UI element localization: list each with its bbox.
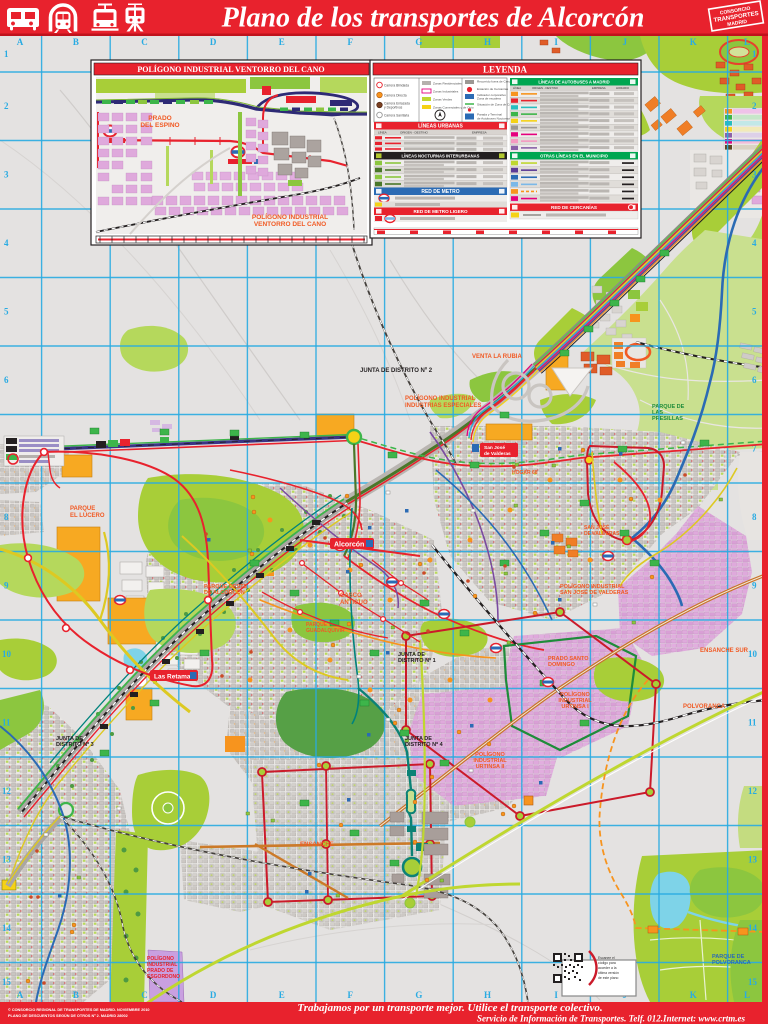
svg-text:ORIGEN - DESTINO: ORIGEN - DESTINO [400, 131, 429, 135]
svg-text:LÍNEAS URBANAS: LÍNEAS URBANAS [418, 122, 463, 130]
svg-text:San José: San José [484, 445, 505, 451]
svg-text:HOGAR 68: HOGAR 68 [512, 470, 538, 476]
svg-text:SAN JOSÉ DE VALDERAS: SAN JOSÉ DE VALDERAS [560, 588, 629, 596]
svg-text:8: 8 [4, 512, 9, 522]
svg-text:L: L [744, 990, 750, 1000]
svg-text:DE VALDERAS: DE VALDERAS [584, 531, 620, 537]
svg-text:LÍNEAS NOCTURNAS INTERURBANAS: LÍNEAS NOCTURNAS INTERURBANAS [402, 154, 480, 159]
svg-text:LEYENDA: LEYENDA [483, 65, 528, 75]
svg-text:6: 6 [752, 375, 757, 385]
svg-text:13: 13 [2, 855, 12, 865]
svg-text:15: 15 [748, 977, 758, 987]
svg-text:© CONSORCIO REGIONAL DE TRANSP: © CONSORCIO REGIONAL DE TRANSPORTES DE M… [8, 1008, 150, 1012]
svg-text:F: F [348, 990, 354, 1000]
svg-text:de este plano: de este plano [598, 976, 618, 980]
svg-text:3: 3 [4, 170, 9, 180]
svg-text:PARQUE: PARQUE [70, 506, 95, 512]
svg-text:Escanee el: Escanee el [598, 956, 615, 960]
svg-text:EMPRESA: EMPRESA [472, 131, 487, 135]
svg-text:10: 10 [2, 649, 12, 659]
svg-text:12: 12 [2, 786, 12, 796]
svg-text:Zonas Residenciales: Zonas Residenciales [433, 82, 462, 86]
svg-text:LÍNEAS DE AUTOBUSES A MADRID: LÍNEAS DE AUTOBUSES A MADRID [538, 80, 609, 85]
svg-text:C: C [141, 37, 148, 47]
svg-text:Carrera Directa: Carrera Directa [384, 94, 407, 98]
svg-text:JUNTA DE DISTRITO Nº 2: JUNTA DE DISTRITO Nº 2 [360, 368, 433, 374]
svg-text:de Autobuses Nocturnos: de Autobuses Nocturnos [477, 117, 511, 121]
svg-text:Plano de los transportes de Al: Plano de los transportes de Alcorcón [221, 3, 645, 34]
svg-text:POLVORANCA: POLVORANCA [712, 960, 751, 966]
svg-text:ENSANCHE SUR: ENSANCHE SUR [700, 648, 749, 654]
svg-text:código para: código para [598, 961, 616, 965]
svg-text:RED DE METRO: RED DE METRO [421, 189, 459, 195]
svg-text:B: B [73, 990, 79, 1000]
svg-text:4: 4 [4, 238, 9, 248]
svg-text:Las Retamas: Las Retamas [154, 674, 194, 681]
svg-text:I: I [554, 37, 558, 47]
svg-text:PRESILLAS: PRESILLAS [652, 416, 683, 422]
svg-text:5: 5 [752, 307, 757, 317]
svg-text:D: D [210, 990, 217, 1000]
svg-text:Zona de escalera: Zona de escalera [477, 97, 501, 101]
svg-text:y Deportivos: y Deportivos [384, 106, 403, 110]
svg-text:DISTRITO Nº 4: DISTRITO Nº 4 [405, 742, 444, 748]
svg-text:12: 12 [748, 786, 758, 796]
svg-text:2: 2 [752, 101, 757, 111]
svg-text:EMPRESA: EMPRESA [592, 86, 606, 90]
svg-text:5: 5 [4, 307, 9, 317]
svg-text:G: G [415, 990, 422, 1000]
svg-text:ESGORDONO: ESGORDONO [147, 974, 180, 980]
svg-text:C: C [141, 990, 148, 1000]
svg-text:Carrera Sanitaria: Carrera Sanitaria [384, 114, 409, 118]
svg-text:Servicio de Información de Tra: Servicio de Información de Transportes. … [477, 1014, 745, 1024]
svg-text:DEL ESPINO: DEL ESPINO [140, 122, 179, 129]
svg-text:Zonas Industriales: Zonas Industriales [433, 90, 459, 94]
svg-text:11: 11 [748, 718, 757, 728]
svg-text:9: 9 [4, 581, 9, 591]
svg-text:K: K [690, 37, 697, 47]
svg-text:URTINSA II: URTINSA II [476, 764, 505, 770]
svg-text:B: B [73, 37, 79, 47]
svg-text:LÍNEA: LÍNEA [378, 131, 387, 135]
svg-text:ENSANCHE: ENSANCHE [300, 842, 334, 848]
svg-text:GUADALQUIVIR: GUADALQUIVIR [306, 628, 345, 634]
svg-text:Estación de Cercanías: Estación de Cercanías [477, 87, 509, 91]
svg-text:acceder a la: acceder a la [598, 966, 617, 970]
svg-text:POLÍGONO INDUSTRIAL: POLÍGONO INDUSTRIAL [405, 394, 476, 402]
svg-text:4: 4 [752, 238, 757, 248]
svg-text:PRADO: PRADO [148, 115, 171, 122]
svg-text:Zonas Comerciales y de Ocio: Zonas Comerciales y de Ocio [433, 106, 474, 110]
svg-text:RED DE METRO LIGERO: RED DE METRO LIGERO [413, 209, 468, 214]
svg-text:CASCO: CASCO [340, 593, 362, 599]
svg-text:ORIGEN - DESTINO: ORIGEN - DESTINO [532, 86, 559, 90]
svg-text:última versión: última versión [598, 971, 619, 975]
svg-text:INDUSTRIAS ESPECIALES: INDUSTRIAS ESPECIALES [405, 403, 481, 409]
svg-text:L: L [744, 37, 750, 47]
svg-text:13: 13 [748, 855, 758, 865]
svg-text:D: D [210, 37, 217, 47]
svg-text:H: H [484, 37, 491, 47]
svg-text:ANTIGUO: ANTIGUO [340, 600, 368, 606]
svg-text:POLÍGONO INDUSTRIAL VENTORRO D: POLÍGONO INDUSTRIAL VENTORRO DEL CANO [137, 64, 324, 74]
svg-text:POLVORANCA: POLVORANCA [683, 704, 726, 710]
svg-text:HORARIO: HORARIO [616, 86, 630, 90]
svg-text:K: K [690, 990, 697, 1000]
svg-text:Carrera Blindada: Carrera Blindada [384, 84, 409, 88]
svg-text:Zonas Verdes: Zonas Verdes [433, 98, 453, 102]
svg-text:A: A [17, 990, 24, 1000]
svg-text:I: I [554, 990, 558, 1000]
svg-text:URTINSA I: URTINSA I [561, 704, 589, 710]
svg-text:14: 14 [2, 923, 12, 933]
svg-text:9: 9 [752, 581, 757, 591]
svg-text:2: 2 [4, 101, 9, 111]
svg-text:10: 10 [748, 649, 758, 659]
svg-text:POLÍGONO: POLÍGONO [147, 954, 174, 962]
svg-text:POLÍGONO: POLÍGONO [475, 750, 505, 758]
svg-text:6: 6 [4, 375, 9, 385]
svg-text:POLÍGONO INDUSTRIAL: POLÍGONO INDUSTRIAL [252, 212, 328, 221]
svg-text:DE ALCORCÓN: DE ALCORCÓN [204, 588, 245, 596]
svg-text:E: E [279, 37, 285, 47]
svg-text:OTRAS LÍNEAS EN EL MUNICIPIO: OTRAS LÍNEAS EN EL MUNICIPIO [540, 154, 609, 159]
svg-text:VENTORRO DEL CANO: VENTORRO DEL CANO [254, 221, 326, 228]
svg-text:DISTRITO Nº 3: DISTRITO Nº 3 [56, 742, 94, 748]
svg-text:1: 1 [752, 49, 757, 59]
svg-text:A: A [17, 37, 24, 47]
svg-text:EL LUCERO: EL LUCERO [70, 513, 105, 519]
svg-text:SAN JOSÉ: SAN JOSÉ [584, 523, 610, 531]
svg-text:RED DE CERCANÍAS: RED DE CERCANÍAS [551, 203, 597, 210]
svg-text:DOMINGO: DOMINGO [548, 662, 576, 668]
svg-text:F: F [348, 37, 354, 47]
svg-text:1: 1 [4, 49, 9, 59]
svg-text:Trabajamos por un transporte m: Trabajamos por un transporte mejor. Util… [297, 1002, 602, 1014]
svg-text:DISTRITO Nº 1: DISTRITO Nº 1 [398, 658, 436, 664]
svg-text:LÍNEA: LÍNEA [513, 86, 521, 90]
svg-text:E: E [279, 990, 285, 1000]
svg-text:de Valderas: de Valderas [484, 451, 511, 457]
svg-text:H: H [484, 990, 491, 1000]
svg-text:POLÍGONO: POLÍGONO [560, 690, 590, 698]
svg-text:VENTA LA RUBIA: VENTA LA RUBIA [472, 354, 522, 360]
svg-text:8: 8 [752, 512, 757, 522]
svg-text:15: 15 [2, 977, 12, 987]
svg-text:Alcorcón: Alcorcón [334, 542, 364, 549]
svg-text:POLÍGONO INDUSTRIAL: POLÍGONO INDUSTRIAL [560, 582, 625, 590]
svg-text:J: J [622, 37, 627, 47]
svg-text:G: G [415, 37, 422, 47]
svg-text:11: 11 [2, 718, 11, 728]
svg-text:PLANO DE DESCUENTOS SEGÚN DE O: PLANO DE DESCUENTOS SEGÚN DE OTROS Nº 2.… [8, 1013, 128, 1018]
